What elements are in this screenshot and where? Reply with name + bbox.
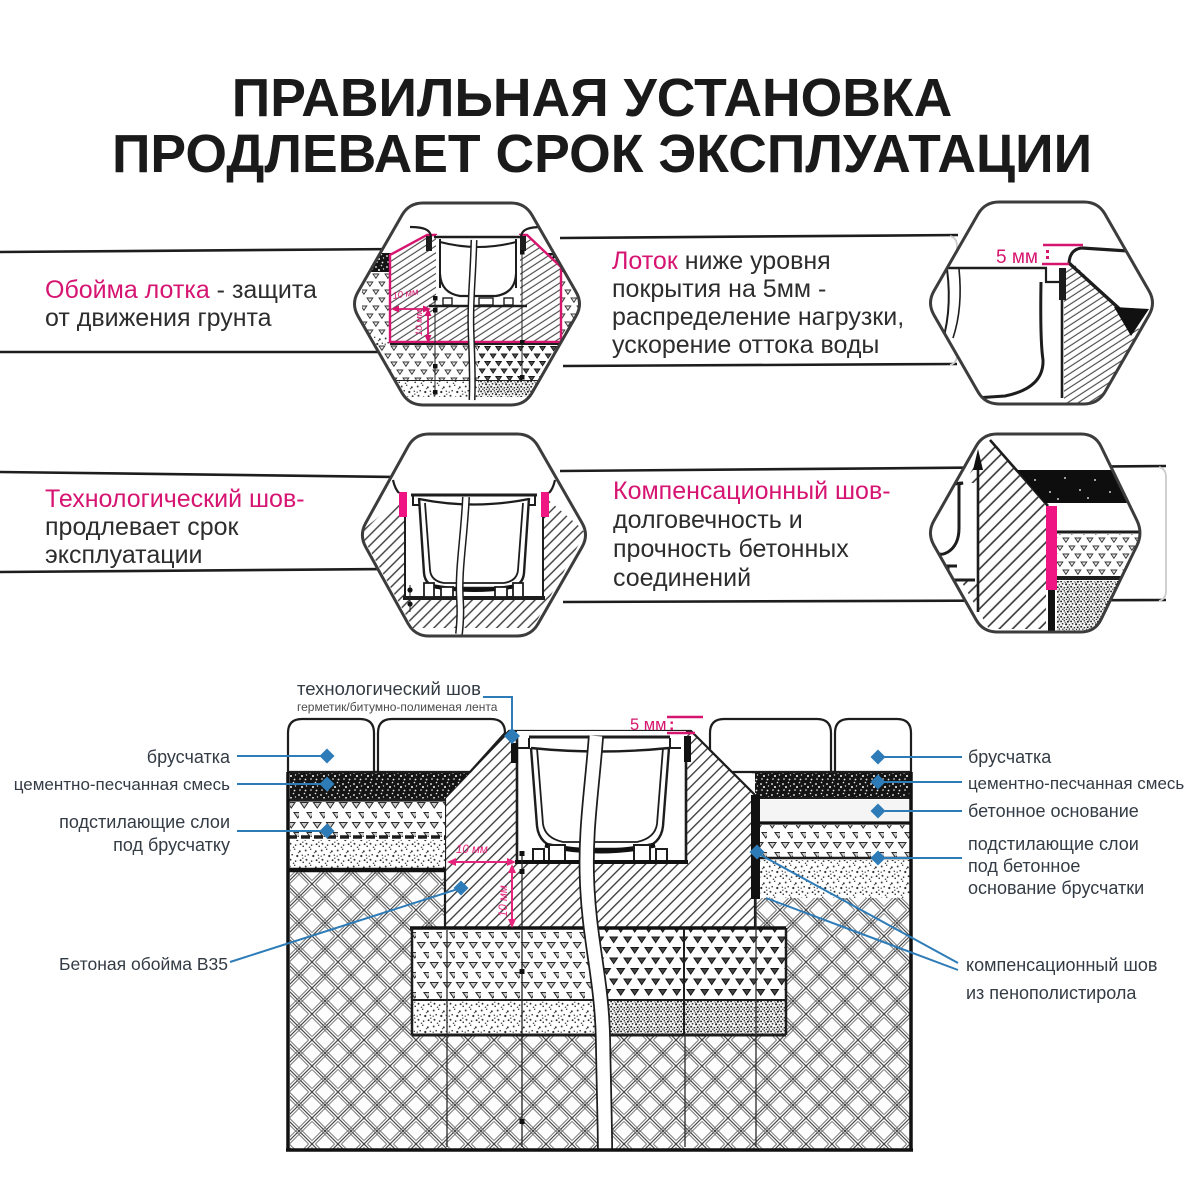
svg-text:соединений: соединений (613, 564, 751, 592)
svg-text:Лоток ниже уровня: Лоток ниже уровня (612, 247, 831, 275)
svg-text:от движения грунта: от движения грунта (45, 304, 272, 332)
svg-text:Бетоная обойма B35: Бетоная обойма B35 (59, 954, 228, 974)
svg-text:герметик/битумно-полименая лен: герметик/битумно-полименая лента (297, 700, 498, 714)
svg-text:эксплуатации: эксплуатации (45, 541, 203, 569)
svg-text:Компенсационный шов-: Компенсационный шов- (613, 477, 891, 505)
svg-text:прочность бетонных: прочность бетонных (613, 535, 849, 563)
svg-text:компенсационный шов: компенсационный шов (966, 955, 1157, 975)
svg-text:покрытия на 5мм -: покрытия на 5мм - (612, 275, 826, 303)
svg-text:10 мм: 10 мм (414, 309, 425, 336)
svg-text:Технологический шов-: Технологический шов- (45, 485, 305, 513)
svg-text:5 мм: 5 мм (996, 247, 1038, 268)
svg-text:продлевает срок: продлевает срок (45, 513, 240, 541)
svg-text:ускорение оттока воды: ускорение оттока воды (612, 331, 879, 359)
svg-text:распределение нагрузки,: распределение нагрузки, (612, 303, 904, 331)
svg-text:под брусчатку: под брусчатку (113, 835, 230, 855)
svg-text:подстилающие слои: подстилающие слои (59, 812, 230, 832)
svg-text:основание брусчатки: основание брусчатки (968, 878, 1144, 898)
svg-text:цементно-песчанная смесь: цементно-песчанная смесь (968, 774, 1184, 793)
svg-text:из пенополистирола: из пенополистирола (966, 983, 1137, 1003)
svg-text:цементно-песчанная смесь: цементно-песчанная смесь (14, 775, 230, 794)
svg-text:Обойма лотка - защита: Обойма лотка - защита (45, 276, 317, 304)
svg-text:ПРАВИЛЬНАЯ УСТАНОВКА: ПРАВИЛЬНАЯ УСТАНОВКА (232, 69, 952, 128)
svg-text:ПРОДЛЕВАЕТ СРОК ЭКСПЛУАТАЦИИ: ПРОДЛЕВАЕТ СРОК ЭКСПЛУАТАЦИИ (112, 125, 1092, 184)
svg-text:подстилающие слои: подстилающие слои (968, 834, 1139, 854)
svg-text:10 мм: 10 мм (498, 885, 510, 917)
svg-text:бетонное основание: бетонное основание (968, 801, 1139, 821)
svg-text:10 мм: 10 мм (456, 844, 488, 856)
svg-text:технологический шов: технологический шов (297, 678, 481, 699)
svg-text:5 мм: 5 мм (630, 716, 666, 734)
svg-text:под бетонное: под бетонное (968, 856, 1080, 876)
svg-text:брусчатка: брусчатка (968, 747, 1052, 767)
svg-text:брусчатка: брусчатка (147, 747, 231, 767)
svg-text:долговечность и: долговечность и (613, 506, 803, 534)
